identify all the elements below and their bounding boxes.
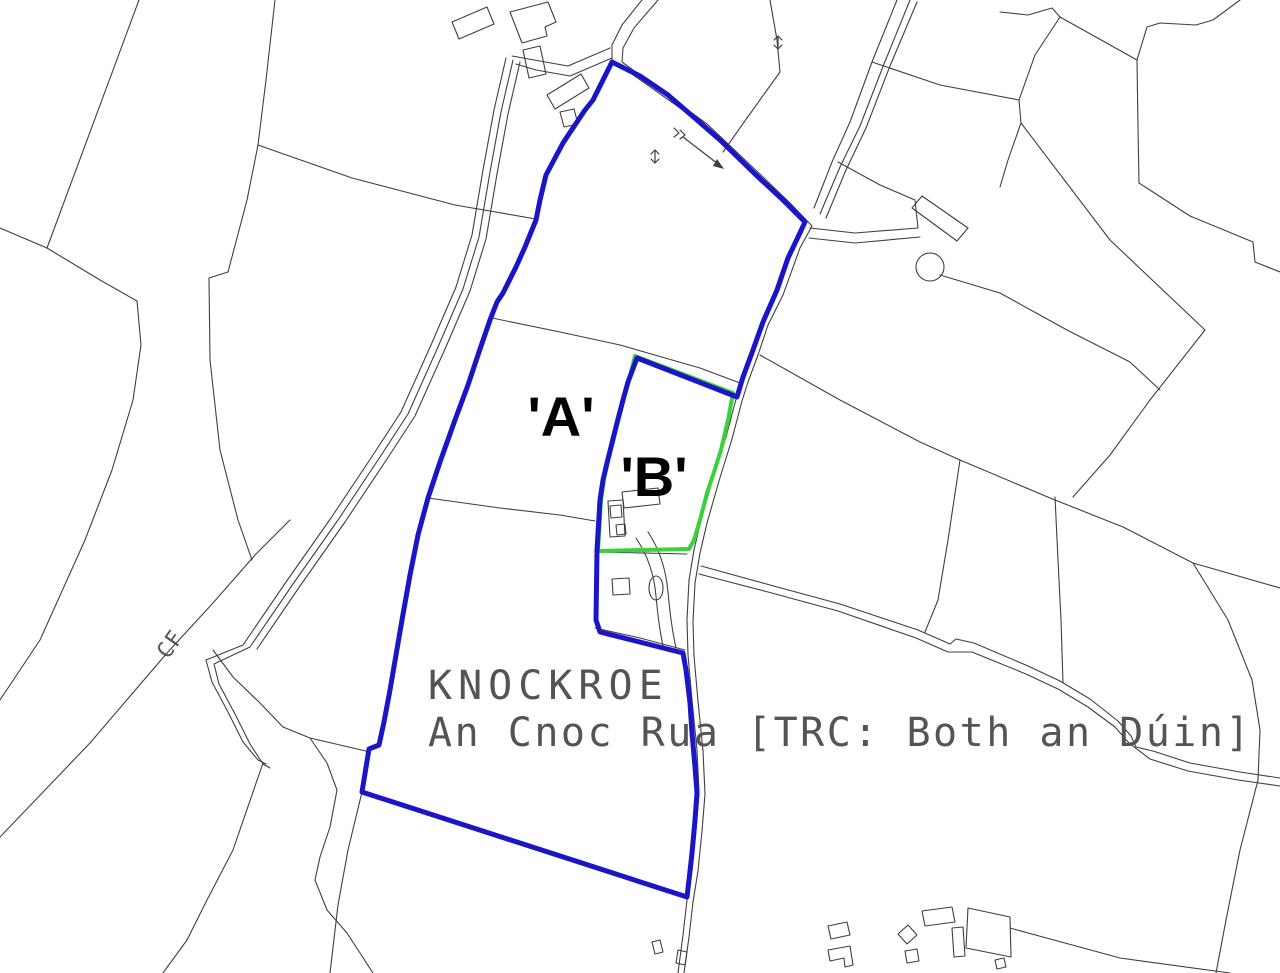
- townland-irish-label: An Cnoc Rua [TRC: Both an Dúin]: [428, 710, 1252, 756]
- parcel-a-label: 'A': [527, 385, 594, 448]
- map-viewport: 'A' 'B' KNOCKROE An Cnoc Rua [TRC: Both …: [0, 0, 1280, 973]
- townland-name-label: KNOCKROE: [428, 663, 669, 709]
- cadastral-map: 'A' 'B' KNOCKROE An Cnoc Rua [TRC: Both …: [0, 0, 1280, 973]
- parcel-b-label: 'B': [620, 445, 687, 508]
